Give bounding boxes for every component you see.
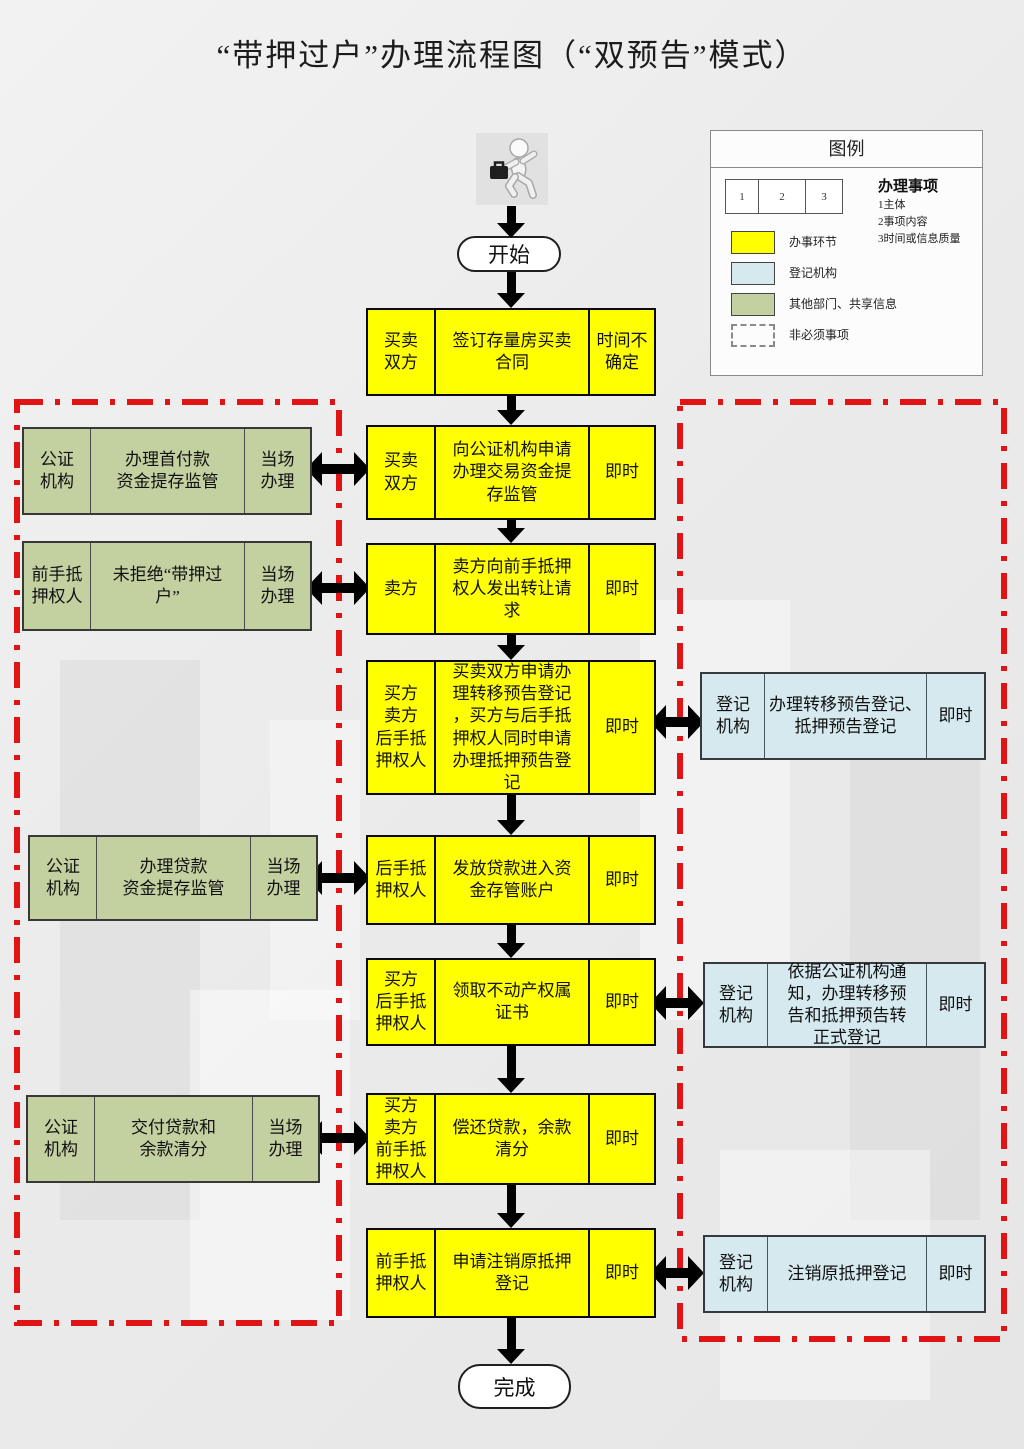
registry-subject: 登记 机构 bbox=[705, 1237, 767, 1311]
legend-cell-1: 1 bbox=[725, 179, 759, 214]
registry-box-cancel-mortgage: 登记 机构 注销原抵押登记 即时 bbox=[703, 1235, 986, 1313]
step-content: 买卖双方申请办 理转移预告登记 ，买方与后手抵 押权人同时申请 办理抵押预告登 … bbox=[434, 662, 588, 793]
arrow-down bbox=[497, 206, 525, 238]
person-running-icon bbox=[476, 133, 548, 205]
arrow-down bbox=[497, 925, 525, 958]
step-time: 即时 bbox=[588, 960, 654, 1044]
step-time: 即时 bbox=[588, 545, 654, 633]
aux-time: 当场 办理 bbox=[250, 837, 316, 919]
step-time: 即时 bbox=[588, 837, 654, 923]
dashed-swatch bbox=[731, 324, 775, 347]
aux-box-loan-escrow: 公证 机构 办理贷款 资金提存监管 当场 办理 bbox=[28, 835, 318, 921]
registry-time: 即时 bbox=[926, 964, 984, 1046]
process-step-certificate-collect: 买方 后手抵 押权人 领取不动产权属 证书 即时 bbox=[366, 958, 656, 1046]
legend-title: 图例 bbox=[711, 131, 982, 168]
aux-subject: 前手抵 押权人 bbox=[24, 543, 90, 629]
legend-line-time: 3时间或信息质量 bbox=[878, 231, 961, 248]
step-subject: 买方 卖方 后手抵 押权人 bbox=[368, 662, 434, 793]
arrow-double-horizontal bbox=[306, 571, 370, 605]
aux-content: 办理贷款 资金提存监管 bbox=[96, 837, 250, 919]
process-step-loan-release: 后手抵 押权人 发放贷款进入资 金存管账户 即时 bbox=[366, 835, 656, 925]
legend-cell-2: 2 bbox=[758, 179, 806, 214]
end-node: 完成 bbox=[458, 1364, 571, 1409]
step-time: 时间不 确定 bbox=[588, 310, 654, 394]
aux-box-fund-settlement: 公证 机构 交付贷款和 余款清分 当场 办理 bbox=[26, 1095, 320, 1183]
legend-sample-box: 1 2 3 bbox=[725, 179, 843, 214]
arrow-double-horizontal bbox=[306, 452, 370, 486]
page-title: “带押过户”办理流程图（“双预告”模式） bbox=[0, 30, 1024, 75]
step-subject: 买卖 双方 bbox=[368, 310, 434, 394]
legend-line-content: 2事项内容 bbox=[878, 214, 961, 231]
legend-items-heading: 办理事项 bbox=[878, 175, 938, 196]
legend: 图例 1 2 3 办理事项 1主体 2事项内容 3时间或信息质量 办事环节 登记… bbox=[710, 130, 983, 376]
blue-swatch bbox=[731, 262, 775, 285]
step-subject: 前手抵 押权人 bbox=[368, 1230, 434, 1316]
right-optional-boundary bbox=[676, 398, 1008, 1343]
registry-subject: 登记 机构 bbox=[702, 674, 764, 758]
registry-content: 注销原抵押登记 bbox=[767, 1237, 926, 1311]
step-time: 即时 bbox=[588, 1095, 654, 1183]
registry-box-formal-registration: 登记 机构 依据公证机构通 知，办理转移预 告和抵押预告转 正式登记 即时 bbox=[703, 962, 986, 1048]
aux-content: 交付贷款和 余款清分 bbox=[94, 1097, 252, 1181]
aux-box-no-rejection: 前手抵 押权人 未拒绝“带押过 户” 当场 办理 bbox=[22, 541, 312, 631]
step-content: 领取不动产权属 证书 bbox=[434, 960, 588, 1044]
arrow-down bbox=[497, 795, 525, 835]
step-content: 向公证机构申请 办理交易资金提 存监管 bbox=[434, 427, 588, 518]
process-step-fund-escrow-apply: 买卖 双方 向公证机构申请 办理交易资金提 存监管 即时 bbox=[366, 425, 656, 520]
aux-content: 未拒绝“带押过 户” bbox=[90, 543, 244, 629]
registry-time: 即时 bbox=[926, 674, 984, 758]
process-step-cancel-mortgage-apply: 前手抵 押权人 申请注销原抵押 登记 即时 bbox=[366, 1228, 656, 1318]
step-time: 即时 bbox=[588, 1230, 654, 1316]
step-content: 申请注销原抵押 登记 bbox=[434, 1230, 588, 1316]
aux-subject: 公证 机构 bbox=[30, 837, 96, 919]
step-subject: 后手抵 押权人 bbox=[368, 837, 434, 923]
step-subject: 买方 后手抵 押权人 bbox=[368, 960, 434, 1044]
arrow-double-horizontal bbox=[650, 986, 704, 1020]
process-step-sign-contract: 买卖 双方 签订存量房买卖 合同 时间不 确定 bbox=[366, 308, 656, 396]
arrow-down bbox=[497, 1185, 525, 1228]
start-node: 开始 bbox=[457, 236, 561, 272]
process-step-advance-registration: 买方 卖方 后手抵 押权人 买卖双方申请办 理转移预告登记 ，买方与后手抵 押权… bbox=[366, 660, 656, 795]
step-subject: 卖方 bbox=[368, 545, 434, 633]
legend-line-subject: 1主体 bbox=[878, 197, 961, 214]
process-step-transfer-request: 卖方 卖方向前手抵押 权人发出转让请 求 即时 bbox=[366, 543, 656, 635]
aux-subject: 公证 机构 bbox=[28, 1097, 94, 1181]
arrow-down bbox=[497, 1318, 525, 1364]
arrow-down bbox=[497, 1046, 525, 1093]
step-time: 即时 bbox=[588, 427, 654, 518]
arrow-down bbox=[497, 520, 525, 543]
step-time: 即时 bbox=[588, 662, 654, 793]
aux-box-downpayment-escrow: 公证 机构 办理首付款 资金提存监管 当场 办理 bbox=[22, 427, 312, 515]
process-step-loan-repayment: 买方 卖方 前手抵 押权人 偿还贷款，余款 清分 即时 bbox=[366, 1093, 656, 1185]
legend-cell-3: 3 bbox=[805, 179, 843, 214]
arrow-double-horizontal bbox=[650, 1256, 704, 1290]
arrow-double-horizontal bbox=[650, 705, 704, 739]
registry-subject: 登记 机构 bbox=[705, 964, 767, 1046]
step-subject: 买卖 双方 bbox=[368, 427, 434, 518]
registry-content: 依据公证机构通 知，办理转移预 告和抵押预告转 正式登记 bbox=[767, 964, 926, 1046]
yellow-swatch bbox=[731, 231, 775, 254]
registry-box-advance-registration: 登记 机构 办理转移预告登记、 抵押预告登记 即时 bbox=[700, 672, 986, 760]
aux-time: 当场 办理 bbox=[244, 543, 310, 629]
background-shape bbox=[640, 600, 790, 1020]
registry-content: 办理转移预告登记、 抵押预告登记 bbox=[764, 674, 926, 758]
step-subject: 买方 卖方 前手抵 押权人 bbox=[368, 1095, 434, 1183]
aux-time: 当场 办理 bbox=[252, 1097, 318, 1181]
step-content: 偿还贷款，余款 清分 bbox=[434, 1095, 588, 1183]
arrow-down bbox=[497, 272, 525, 308]
aux-subject: 公证 机构 bbox=[24, 429, 90, 513]
flowchart-canvas: “带押过户”办理流程图（“双预告”模式） 图例 1 2 3 办理事项 1主体 2… bbox=[0, 0, 1024, 1449]
arrow-down bbox=[497, 396, 525, 425]
green-swatch bbox=[731, 293, 775, 316]
step-content: 签订存量房买卖 合同 bbox=[434, 310, 588, 394]
step-content: 卖方向前手抵押 权人发出转让请 求 bbox=[434, 545, 588, 633]
arrow-down bbox=[497, 635, 525, 660]
aux-time: 当场 办理 bbox=[244, 429, 310, 513]
aux-content: 办理首付款 资金提存监管 bbox=[90, 429, 244, 513]
registry-time: 即时 bbox=[926, 1237, 984, 1311]
legend-items-lines: 1主体 2事项内容 3时间或信息质量 bbox=[878, 197, 961, 248]
step-content: 发放贷款进入资 金存管账户 bbox=[434, 837, 588, 923]
